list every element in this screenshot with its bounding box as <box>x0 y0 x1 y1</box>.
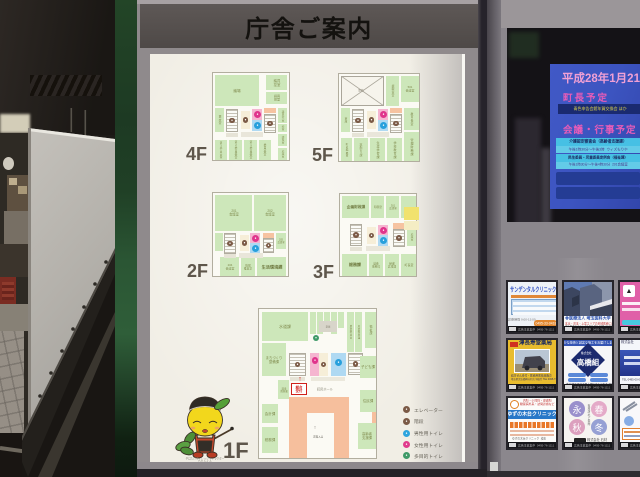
svg-text:ちちんくん: ちちんくん <box>198 459 212 462</box>
